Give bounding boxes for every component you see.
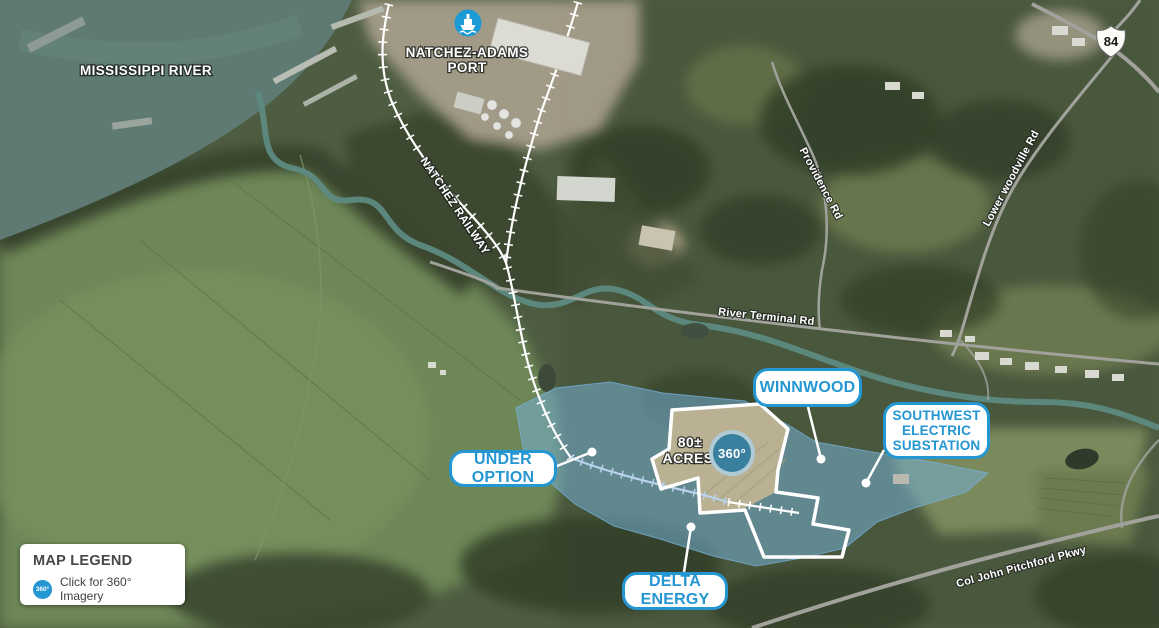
callout-winnwood: WINNWOOD (753, 368, 862, 407)
acreage-label-line2: ACRES (662, 450, 713, 466)
callout-substation-line3: SUBSTATION (892, 438, 980, 453)
legend-360-icon-label: 360° (36, 586, 49, 593)
mississippi-river-label: MISSISSIPPI RIVER (80, 63, 212, 78)
pond (681, 323, 709, 339)
port-label-line2: PORT (447, 60, 486, 75)
pond (538, 364, 556, 392)
port-icon (455, 10, 482, 37)
callout-delta-energy: DELTA ENERGY (622, 572, 728, 610)
legend-360-icon: 360° (33, 580, 52, 599)
port-label-line1: NATCHEZ-ADAMS (406, 45, 529, 60)
site-map: 84 MISSISSIPPI RIVER NATCHEZ-ADAMS PORT … (0, 0, 1159, 628)
view-360-button[interactable]: 360° (709, 430, 755, 476)
callout-under-option: UNDER OPTION (449, 450, 557, 487)
callout-under-option-label: UNDER OPTION (452, 451, 554, 487)
callout-delta-energy-label: DELTA ENERGY (625, 573, 725, 609)
view-360-button-label: 360° (718, 446, 746, 461)
acreage-label-line1: 80± (678, 434, 702, 450)
callout-winnwood-label: WINNWOOD (760, 379, 856, 397)
map-legend-title: MAP LEGEND (33, 553, 173, 569)
legend-item-text: Click for 360° Imagery (60, 575, 173, 603)
us84-shield-number: 84 (1104, 34, 1119, 49)
map-canvas: 84 MISSISSIPPI RIVER NATCHEZ-ADAMS PORT … (0, 0, 1159, 628)
callout-southwest-substation: SOUTHWEST ELECTRIC SUBSTATION (883, 402, 990, 459)
callout-substation-line1: SOUTHWEST (892, 408, 980, 423)
callout-substation-line2: ELECTRIC (892, 423, 980, 438)
map-legend: MAP LEGEND 360° Click for 360° Imagery (20, 544, 185, 605)
